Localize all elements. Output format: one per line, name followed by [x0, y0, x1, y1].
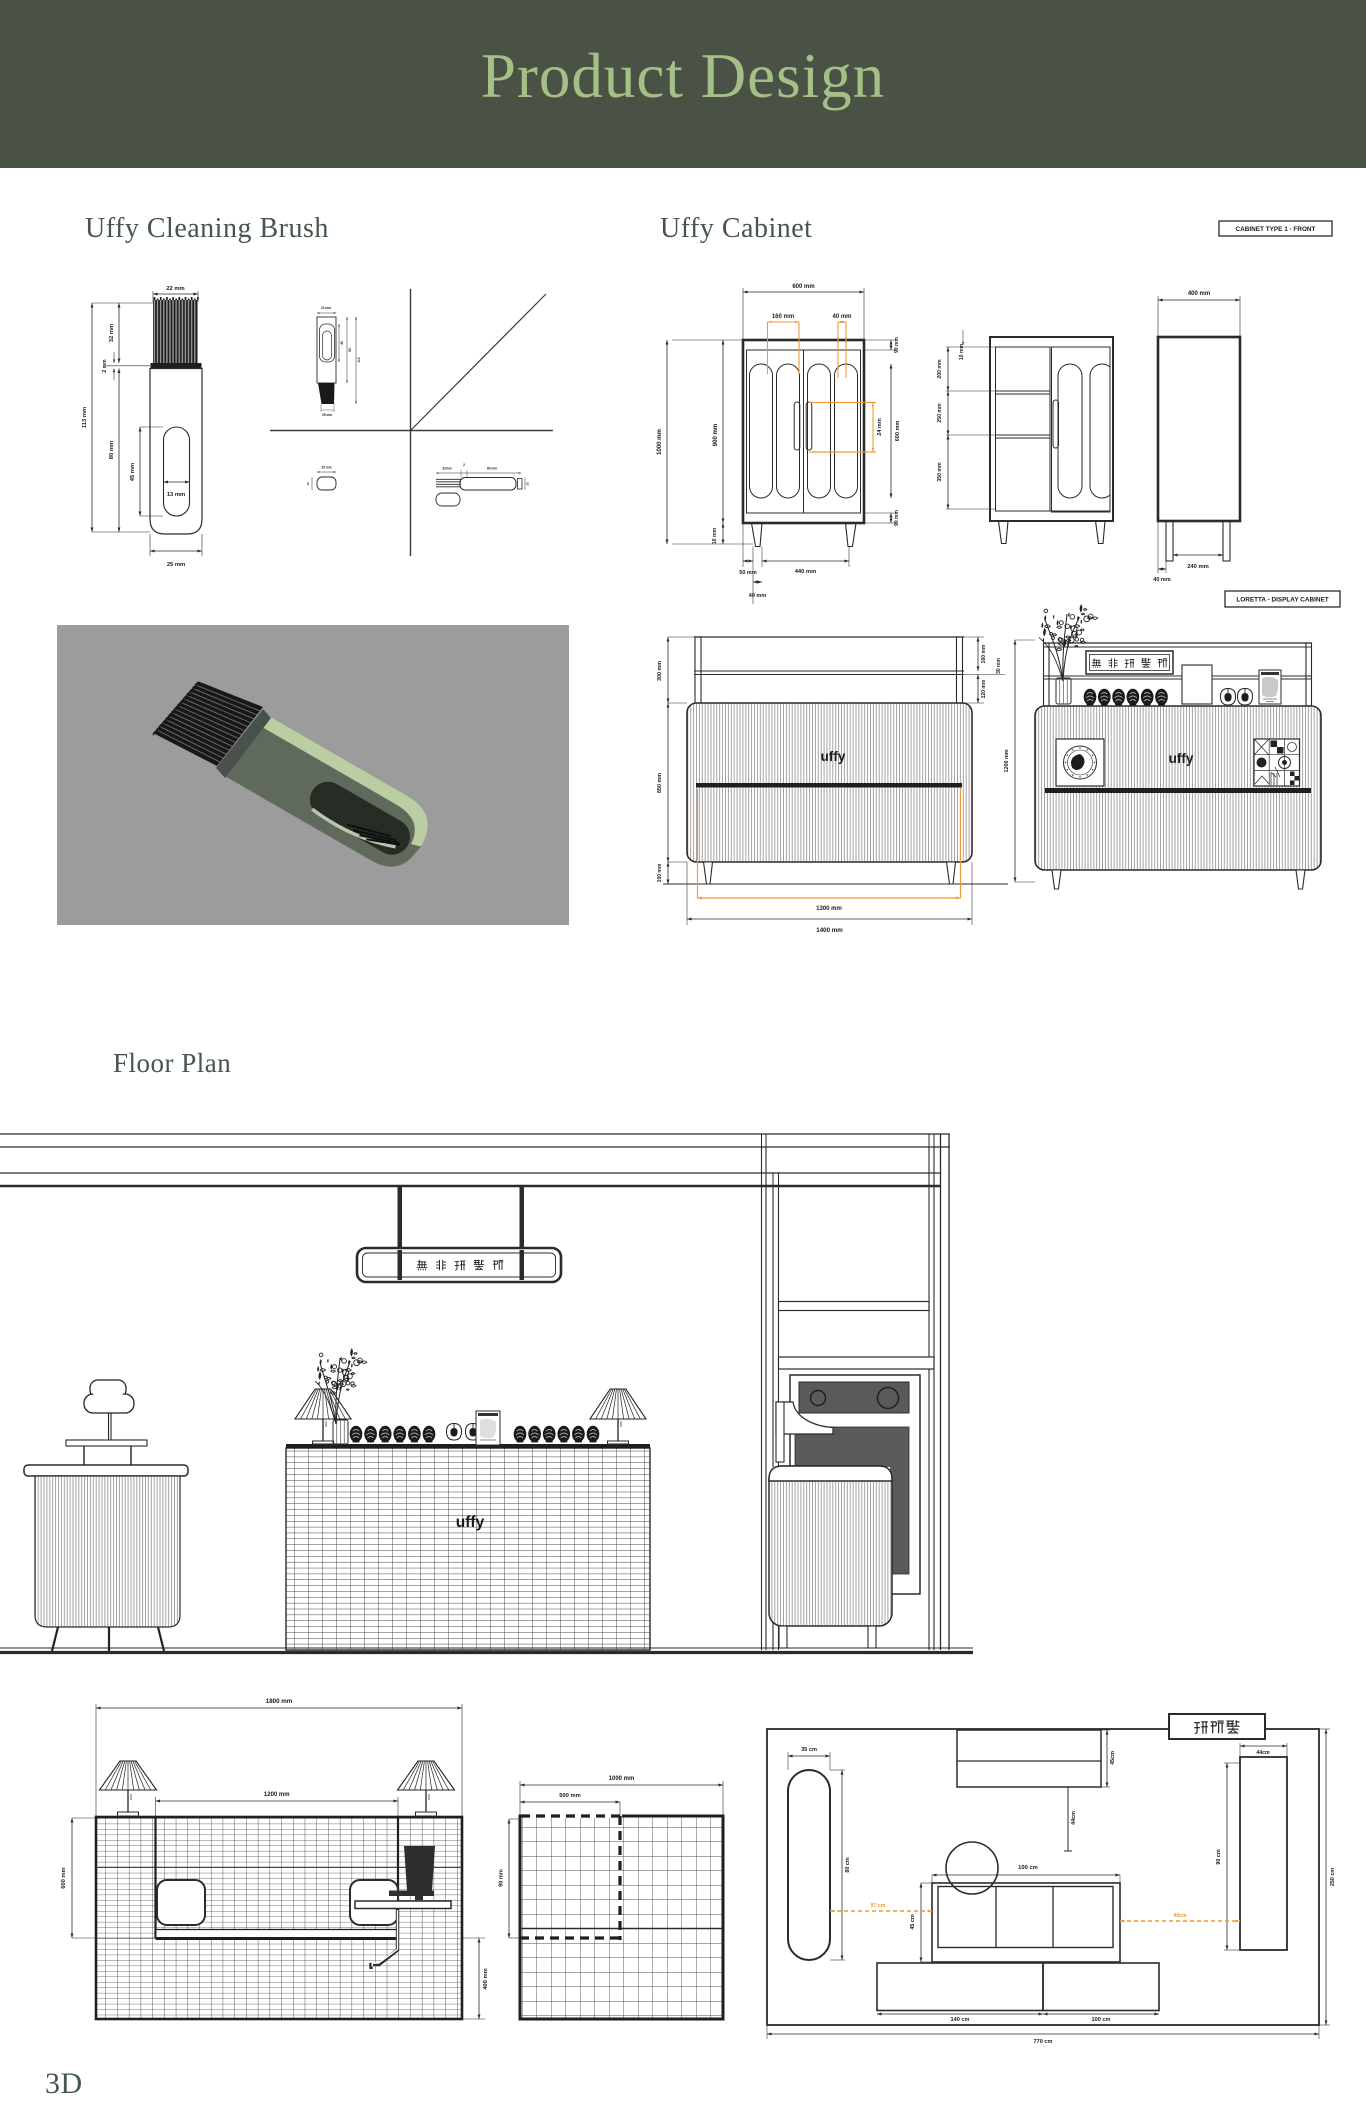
- svg-text:113: 113: [357, 357, 361, 362]
- svg-text:160 mm: 160 mm: [981, 644, 987, 663]
- svg-text:2: 2: [463, 463, 465, 467]
- svg-text:120 mm: 120 mm: [981, 679, 987, 698]
- svg-text:10 mm: 10 mm: [712, 527, 718, 544]
- svg-text:22 mm: 22 mm: [166, 286, 184, 292]
- svg-text:1400 mm: 1400 mm: [816, 927, 843, 934]
- svg-text:35 cm: 35 cm: [801, 1747, 817, 1753]
- svg-text:80 mm: 80 mm: [487, 467, 497, 471]
- svg-text:100 cm: 100 cm: [1092, 2017, 1111, 2023]
- svg-text:32mm: 32mm: [442, 467, 451, 471]
- svg-text:25 mm: 25 mm: [322, 413, 332, 417]
- svg-text:24 mm: 24 mm: [877, 418, 883, 436]
- svg-text:97 cm: 97 cm: [871, 1903, 886, 1909]
- svg-text:1000 mm: 1000 mm: [609, 1776, 635, 1782]
- svg-text:50 mm: 50 mm: [739, 570, 757, 576]
- svg-text:400 mm: 400 mm: [483, 1968, 489, 1990]
- svg-text:25 mm: 25 mm: [321, 466, 331, 470]
- svg-text:32 mm: 32 mm: [109, 324, 115, 342]
- svg-text:300 mm: 300 mm: [657, 661, 663, 681]
- svg-text:250 mm: 250 mm: [937, 403, 943, 423]
- svg-text:90 mm: 90 mm: [499, 1869, 505, 1887]
- svg-text:850 mm: 850 mm: [657, 773, 663, 793]
- svg-text:900 mm: 900 mm: [713, 424, 719, 446]
- svg-text:1800 mm: 1800 mm: [266, 1698, 293, 1705]
- svg-text:13: 13: [306, 482, 310, 486]
- svg-text:22 mm: 22 mm: [321, 306, 331, 310]
- svg-text:400 mm: 400 mm: [1188, 291, 1210, 297]
- svg-text:250 cm: 250 cm: [1330, 1868, 1336, 1886]
- svg-text:uffy: uffy: [456, 1514, 485, 1531]
- svg-text:113 mm: 113 mm: [82, 407, 88, 428]
- svg-text:25 mm: 25 mm: [167, 562, 185, 568]
- svg-text:90 mm: 90 mm: [894, 337, 900, 353]
- svg-text:100 cm: 100 cm: [1018, 1865, 1038, 1871]
- svg-text:770 cm: 770 cm: [1034, 2039, 1053, 2045]
- svg-text:1300 mm: 1300 mm: [816, 906, 842, 912]
- svg-text:CABINET TYPE 1 - FRONT: CABINET TYPE 1 - FRONT: [1236, 226, 1316, 233]
- svg-text:80 cm: 80 cm: [845, 1857, 851, 1872]
- svg-text:240 mm: 240 mm: [1187, 564, 1209, 570]
- svg-text:350 mm: 350 mm: [937, 462, 943, 482]
- svg-text:10 mm: 10 mm: [959, 343, 965, 360]
- svg-text:90 cm: 90 cm: [1216, 1849, 1222, 1864]
- svg-text:500 mm: 500 mm: [559, 1793, 581, 1799]
- svg-text:45 cm: 45 cm: [910, 1914, 916, 1929]
- svg-text:45cm: 45cm: [1110, 1751, 1116, 1765]
- svg-text:1200 mm: 1200 mm: [264, 1792, 290, 1798]
- svg-text:80: 80: [348, 348, 352, 352]
- svg-text:13 mm: 13 mm: [167, 492, 185, 498]
- svg-text:1000 mm: 1000 mm: [657, 429, 663, 455]
- svg-text:44cm: 44cm: [1071, 1811, 1077, 1825]
- svg-text:40 mm: 40 mm: [1153, 577, 1171, 583]
- svg-text:45 mm: 45 mm: [130, 463, 136, 481]
- svg-text:25: 25: [526, 482, 530, 486]
- svg-text:600 mm: 600 mm: [61, 1867, 67, 1889]
- svg-text:1200 mm: 1200 mm: [1004, 749, 1010, 772]
- svg-text:2 mm: 2 mm: [102, 359, 108, 373]
- svg-text:45: 45: [340, 341, 344, 345]
- svg-text:30 mm: 30 mm: [996, 658, 1002, 674]
- svg-text:600 mm: 600 mm: [792, 284, 814, 290]
- svg-text:44cm: 44cm: [1256, 1750, 1270, 1756]
- svg-text:40 mm: 40 mm: [749, 593, 767, 599]
- svg-text:uffy: uffy: [821, 749, 846, 764]
- svg-text:32: 32: [330, 392, 334, 396]
- svg-text:160 mm: 160 mm: [772, 314, 794, 320]
- svg-text:200 mm: 200 mm: [937, 359, 943, 379]
- svg-text:LORETTA - DISPLAY CABINET: LORETTA - DISPLAY CABINET: [1236, 597, 1328, 604]
- svg-text:140 cm: 140 cm: [951, 2017, 970, 2023]
- svg-text:40cm: 40cm: [1173, 1913, 1187, 1919]
- svg-text:80 mm: 80 mm: [109, 441, 115, 459]
- svg-text:90 mm: 90 mm: [894, 510, 900, 526]
- svg-text:40 mm: 40 mm: [832, 314, 851, 320]
- svg-text:600 mm: 600 mm: [895, 421, 901, 442]
- svg-text:100 mm: 100 mm: [657, 863, 663, 882]
- svg-text:uffy: uffy: [1169, 751, 1194, 766]
- svg-text:440 mm: 440 mm: [795, 569, 817, 575]
